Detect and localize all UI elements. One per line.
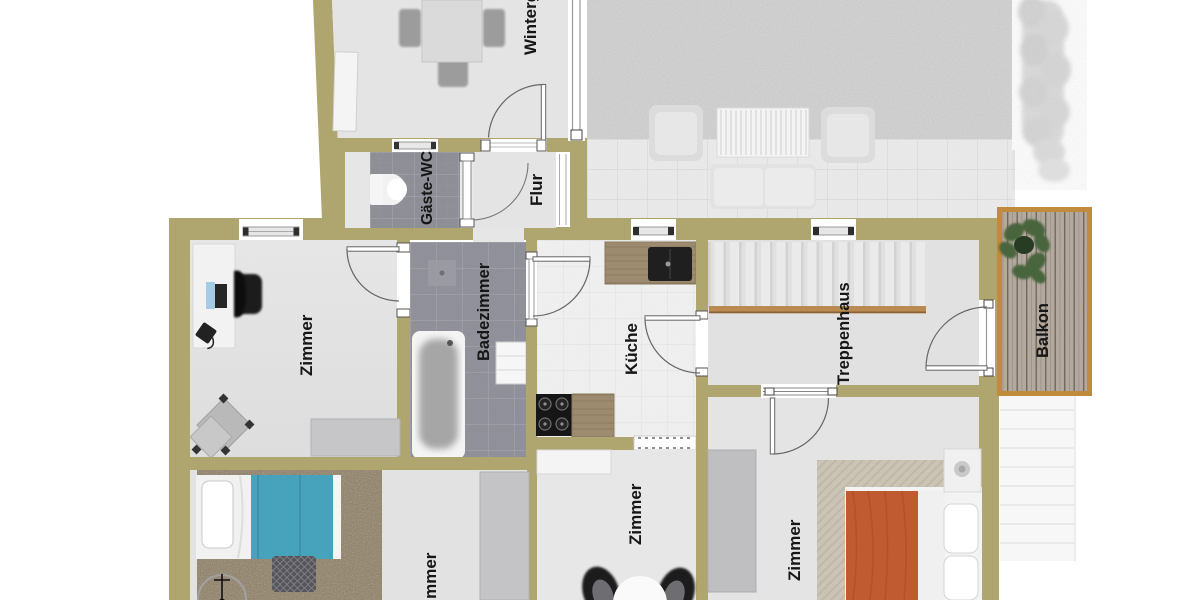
svg-text:Gäste-WC: Gäste-WC (419, 151, 436, 225)
svg-text:Zimmer: Zimmer (297, 314, 316, 376)
svg-text:Badezimmer: Badezimmer (475, 262, 493, 361)
svg-text:Balkon: Balkon (1034, 303, 1052, 358)
svg-text:Küche: Küche (622, 323, 641, 375)
svg-text:Flur: Flur (527, 174, 546, 206)
svg-text:Zimmer: Zimmer (626, 483, 645, 545)
svg-text:Treppenhaus: Treppenhaus (835, 282, 853, 385)
svg-text:Wintergarten: Wintergarten (521, 0, 540, 55)
svg-text:Zimmer: Zimmer (785, 519, 804, 581)
svg-text:Zimmer: Zimmer (421, 552, 440, 600)
